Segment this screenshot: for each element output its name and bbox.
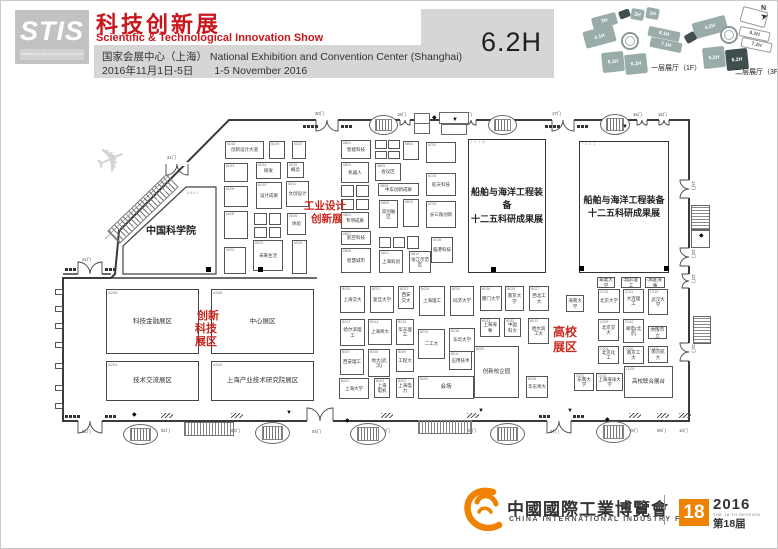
booth: 6D05 — [224, 211, 248, 239]
wall-tick — [113, 415, 116, 418]
booth: C001东南大学 — [574, 373, 594, 391]
booth: B024同济大学 — [450, 286, 474, 316]
booth — [254, 213, 267, 225]
booth: B005创新校企园 — [474, 346, 519, 398]
shutter-icon — [679, 413, 691, 418]
marker-icon: ◆ — [605, 417, 610, 423]
booth: C015武汉大学 — [648, 289, 668, 315]
shutter-icon — [231, 413, 243, 418]
zone-area: A201技术交流展区 — [106, 361, 199, 401]
wall-tick — [577, 415, 580, 418]
booth: B006华东师大 — [526, 376, 548, 398]
wall-tick — [345, 125, 348, 128]
floorplan-page: STIS SCIENTIFIC & TECHNOLOGICAL INNOVATI… — [0, 0, 778, 549]
booth: B012哈尔滨工大 — [528, 318, 549, 344]
wall-tick — [73, 268, 76, 271]
booth: C007南京航大 — [648, 346, 668, 363]
ship-marine-booth: 7C1A船舶与海洋工程装备十二五科研成果展 — [468, 139, 546, 273]
escalator-icon — [488, 115, 517, 135]
travelator-icon — [184, 422, 234, 436]
wall-tick — [581, 125, 584, 128]
gate-label: 15门 — [658, 112, 667, 118]
ship-marine-booth: 7C01船舶与海洋工程装备十二五科研成果展 — [579, 141, 669, 273]
zone-area: A206科技金融展区 — [106, 289, 199, 354]
gate-label: 19门 — [397, 112, 406, 118]
wall-bump — [55, 306, 63, 312]
booth: 6B01智能科技 — [341, 140, 371, 159]
gate-label: 10门 — [679, 428, 688, 434]
gate-label: 12门 — [690, 274, 696, 283]
booth: C002上海海洋大学 — [596, 373, 623, 391]
booth: 6B12张江示范区 — [409, 251, 431, 273]
booth: B033上海海事 — [480, 318, 500, 337]
wall-tick — [315, 125, 318, 128]
escalator-icon — [123, 424, 158, 445]
year-label: 2016 — [713, 496, 750, 513]
booth: 6D10设计成果 — [256, 182, 282, 209]
booth: B025上海理工 — [419, 286, 445, 316]
wall-tick — [105, 415, 108, 418]
booth: B001上海大学 — [339, 378, 369, 399]
booth: B007西安理工 — [340, 349, 364, 375]
ciif-brand-en: CHINA INTERNATIONAL INDUSTRY FAIR — [509, 516, 697, 523]
booth: 6D09 — [224, 186, 248, 207]
gate-label: 09门 — [657, 428, 666, 434]
wall-tick — [65, 415, 68, 418]
booth: B003上海电力 — [396, 378, 414, 398]
wall-tick — [303, 125, 306, 128]
booth: C010邮电(北京) — [623, 319, 644, 343]
booth: 6B09双创展区 — [379, 200, 398, 228]
booth: 6C04长三角创新 — [426, 201, 456, 228]
gate-label: 02门 — [161, 428, 170, 434]
wall-tick — [549, 125, 552, 128]
booth: B032中国科大 — [504, 318, 521, 337]
booth: B026厦门大学 — [480, 286, 502, 311]
marker-icon: ◆ — [345, 418, 350, 424]
marker-icon: ▼ — [478, 408, 484, 414]
zone-label: 创新展 — [311, 211, 343, 226]
zone-area: A203上海产业技术研究院展区 — [211, 361, 314, 401]
stairs-icon — [691, 205, 710, 230]
shutter-icon — [381, 413, 393, 418]
wall-bump — [55, 323, 63, 329]
booth: 6D06体验 — [287, 213, 306, 235]
cas-booth-id: 6A01 — [187, 191, 199, 195]
wall-bump — [55, 363, 63, 369]
wall-tick — [557, 125, 560, 128]
gate-label: 01门 — [82, 429, 91, 435]
booth: 海南大学 — [566, 295, 584, 312]
column-marker — [664, 266, 669, 271]
booth — [269, 213, 281, 225]
booth: 6D18创新设计大道 — [225, 141, 264, 159]
booth: C011北京理工 — [621, 277, 641, 288]
booth — [356, 185, 369, 197]
wall-tick — [553, 125, 556, 128]
booth: B014上海师大 — [368, 319, 392, 345]
marker-icon: ◆ — [132, 412, 137, 418]
booth: C003高校联合展台 — [624, 366, 673, 398]
escalator-icon — [255, 422, 290, 444]
wall-tick — [113, 268, 116, 271]
marker-icon: ◆ — [699, 233, 704, 239]
wall-tick — [545, 125, 548, 128]
booth: B009工程大 — [396, 349, 414, 372]
wall-tick — [109, 415, 112, 418]
booth: 6B02机器人 — [341, 162, 369, 183]
wall-tick — [573, 415, 576, 418]
gate-label: 04门 — [312, 429, 321, 435]
escalator-icon — [596, 421, 631, 443]
hall-outline — [1, 1, 778, 549]
booth — [393, 237, 405, 248]
hall-floorplan: 中国科学院 6A01 ✈ 6D18创新设计大道6D196D206D136D14研… — [1, 1, 778, 549]
booth: B011应用技术 — [449, 351, 472, 370]
booth — [375, 151, 387, 159]
booth: C014大连理工 — [623, 289, 644, 313]
wall-tick — [65, 268, 68, 271]
footer-divider — [664, 495, 665, 525]
booth: 6D15概念 — [287, 162, 304, 178]
marker-icon: ▼ — [567, 408, 573, 414]
booth: C012东北大学 — [597, 277, 615, 288]
column-marker — [579, 266, 584, 271]
gate-label: 07门 — [550, 429, 559, 435]
wall-tick — [547, 415, 550, 418]
booth: B021复旦大学 — [370, 286, 394, 313]
booth: 6B11上海科创 — [379, 250, 403, 273]
column-marker — [206, 267, 211, 272]
wall-tick — [577, 125, 580, 128]
wall-tick — [341, 125, 344, 128]
shutter-icon — [629, 413, 641, 418]
booth — [269, 227, 281, 238]
wall-bump — [55, 403, 63, 409]
booth: B020上海交大 — [340, 286, 365, 313]
shutter-icon — [657, 413, 669, 418]
booth: B028南京大学 — [505, 286, 524, 311]
gate-label: 21门 — [167, 155, 176, 161]
booth: 6B10 — [403, 199, 419, 227]
booth: B019二工大 — [418, 329, 445, 359]
marker-icon: ▼ — [452, 117, 458, 123]
service-room — [414, 123, 430, 134]
wall-tick — [105, 268, 108, 271]
booth: 6D03 — [292, 240, 307, 274]
booth — [388, 140, 400, 149]
booth: 6B05会议区 — [375, 163, 401, 181]
wall-tick — [307, 125, 310, 128]
booth: 6C03航天科技 — [426, 173, 456, 196]
gate-label: 16门 — [633, 112, 642, 118]
gate-label: 20门 — [315, 111, 324, 117]
booth: 6B04 — [403, 141, 419, 160]
gate-label: 17门 — [552, 111, 561, 117]
booth: C018大连海事 — [645, 277, 665, 288]
booth: 6B06中车创新成果 — [378, 183, 419, 196]
stairs-icon — [693, 316, 711, 344]
gate-label: 13门 — [690, 249, 696, 258]
zone-label: 展区 — [195, 333, 217, 349]
marker-icon: ▼ — [286, 410, 292, 416]
booth: B016东华大学 — [449, 328, 475, 352]
booth — [407, 236, 419, 249]
marker-icon: ◆ — [432, 115, 437, 121]
booth: C013北京大学 — [598, 289, 620, 313]
escalator-icon — [350, 423, 386, 445]
booth: B022西安交大 — [398, 286, 414, 309]
gate-label: 14门 — [690, 181, 696, 190]
column-marker — [491, 267, 496, 272]
escalator-icon — [369, 115, 398, 135]
zone-label: 展区 — [553, 338, 577, 355]
column-marker — [258, 267, 263, 272]
session-label-cn: 第18届 — [713, 516, 746, 531]
zone-area: A208中心展区 — [211, 289, 314, 354]
booth — [254, 227, 267, 238]
booth — [379, 237, 391, 248]
wall-tick — [69, 415, 72, 418]
wall-bump — [55, 385, 63, 391]
wall-tick — [311, 125, 314, 128]
escalator-icon — [490, 423, 525, 445]
booth: C005北京化工 — [598, 346, 619, 364]
booth: B004会场 — [418, 376, 474, 399]
booth: 6C02 — [426, 142, 456, 163]
booth — [356, 199, 369, 210]
wall-bump — [55, 289, 63, 295]
booth: 6D20 — [292, 141, 306, 159]
gate-label: 11门 — [690, 344, 696, 353]
wall-tick — [73, 415, 76, 418]
service-room — [441, 124, 467, 135]
booth: B027西北工大 — [529, 286, 549, 311]
wall-tick — [109, 268, 112, 271]
wall-tick — [539, 415, 542, 418]
booth — [388, 151, 400, 159]
booth: B013哈尔滨理工 — [340, 319, 365, 346]
travelator-icon — [418, 420, 472, 434]
wall-tick — [585, 125, 588, 128]
wall-tick — [77, 415, 80, 418]
booth: C017大阪市立 — [648, 326, 667, 339]
wall-bump — [55, 342, 63, 348]
booth: B015华东理工 — [396, 319, 414, 345]
wall-tick — [349, 125, 352, 128]
booth: 6D01 — [224, 247, 246, 274]
ciif-logo-icon — [461, 485, 511, 535]
wall-tick — [69, 268, 72, 271]
shutter-icon — [161, 413, 173, 418]
booth: B008地大(武汉) — [368, 349, 390, 377]
booth: 6C05临港科技 — [431, 237, 453, 263]
session-badge: 18 — [679, 499, 709, 526]
booth: B002上海电机 — [374, 378, 390, 398]
booth: 6D14研发 — [256, 162, 281, 179]
gate-label: 22门 — [82, 257, 91, 263]
cas-booth-label: 中国科学院 — [131, 222, 211, 237]
booth: 6B03专项成果 — [341, 212, 369, 229]
booth: C006南京工大 — [623, 346, 644, 364]
booth: C009北京交大 — [598, 319, 619, 341]
booth: 6B07航空科技 — [341, 231, 371, 245]
booth: 6D19 — [269, 141, 285, 159]
marker-icon: ▼ — [622, 124, 628, 130]
booth: 6D13 — [224, 163, 248, 182]
booth — [375, 140, 387, 149]
booth: 6B08智慧城市 — [341, 248, 371, 273]
wall-tick — [581, 415, 584, 418]
wall-tick — [543, 415, 546, 418]
booth — [341, 185, 354, 197]
